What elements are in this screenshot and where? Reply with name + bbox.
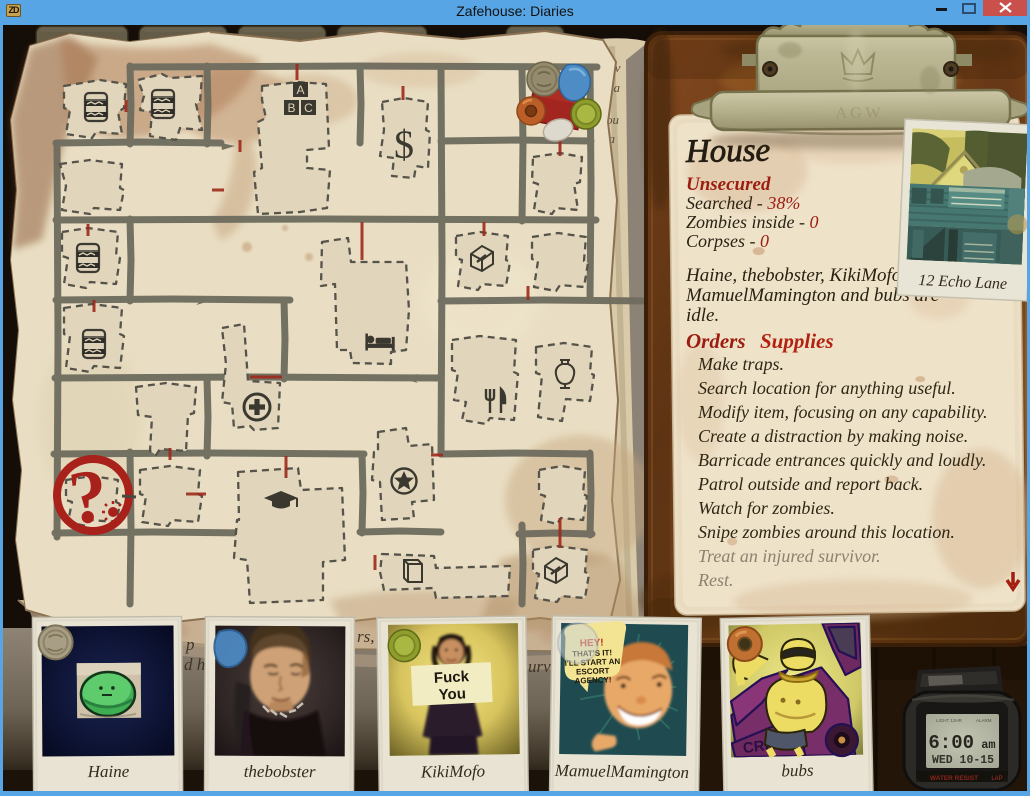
svg-text:C: C (304, 101, 313, 115)
svg-text:WATER RESIST: WATER RESIST (930, 775, 978, 782)
svg-text:A: A (296, 83, 304, 97)
svg-text:ALARM: ALARM (976, 718, 992, 723)
svg-text:WED 10-15: WED 10-15 (932, 754, 994, 767)
svg-text:Corpses - 0: Corpses - 0 (686, 231, 769, 251)
svg-text:B: B (287, 101, 295, 115)
svg-text:Rest.: Rest. (697, 570, 734, 590)
svg-text:Watch for zombies.: Watch for zombies. (698, 498, 835, 518)
svg-text:Modify item, focusing on any c: Modify item, focusing on any capability. (697, 402, 987, 422)
svg-text:Fuck: Fuck (434, 668, 470, 687)
svg-text:LIGHT 12HR: LIGHT 12HR (936, 718, 963, 723)
svg-text:Haine, thebobster, KikiMofo,: Haine, thebobster, KikiMofo, (685, 265, 906, 286)
svg-text:Snipe zombies around this loca: Snipe zombies around this location. (698, 522, 955, 542)
svg-text:Searched - 38%: Searched - 38% (686, 193, 800, 213)
svg-text:thebobster: thebobster (244, 762, 316, 781)
svg-text:LAP: LAP (991, 776, 1002, 782)
svg-text:AGENCY!: AGENCY! (574, 675, 611, 685)
svg-text:Zombies inside - 0: Zombies inside - 0 (686, 212, 819, 232)
svg-text:Search location for anything u: Search location for anything useful. (698, 378, 956, 398)
svg-text:idle.: idle. (686, 305, 719, 326)
svg-text:A G W: A G W (835, 105, 881, 122)
svg-text:$: $ (394, 122, 414, 167)
svg-text:Barricade entrances quickly an: Barricade entrances quickly and loudly. (698, 450, 986, 470)
svg-text:d h: d h (184, 655, 205, 674)
svg-text:Unsecured: Unsecured (686, 174, 771, 195)
svg-text:Treat an injured survivor.: Treat an injured survivor. (698, 546, 881, 566)
svg-text:Orders: Orders (686, 329, 746, 353)
svg-text:KikiMofo: KikiMofo (420, 762, 485, 782)
svg-text:You: You (438, 685, 466, 703)
svg-text:Create a distraction by making: Create a distraction by making noise. (698, 426, 968, 446)
svg-text:rs,: rs, (357, 627, 374, 646)
svg-text:bubs: bubs (781, 761, 814, 781)
svg-text:MamuelMamington: MamuelMamington (554, 761, 689, 782)
svg-text:Make traps.: Make traps. (697, 354, 784, 374)
svg-text:Supplies: Supplies (760, 329, 834, 353)
svg-text:p: p (185, 635, 195, 654)
svg-text:Haine: Haine (87, 762, 130, 781)
svg-text:Patrol outside and report back: Patrol outside and report back. (697, 474, 923, 494)
